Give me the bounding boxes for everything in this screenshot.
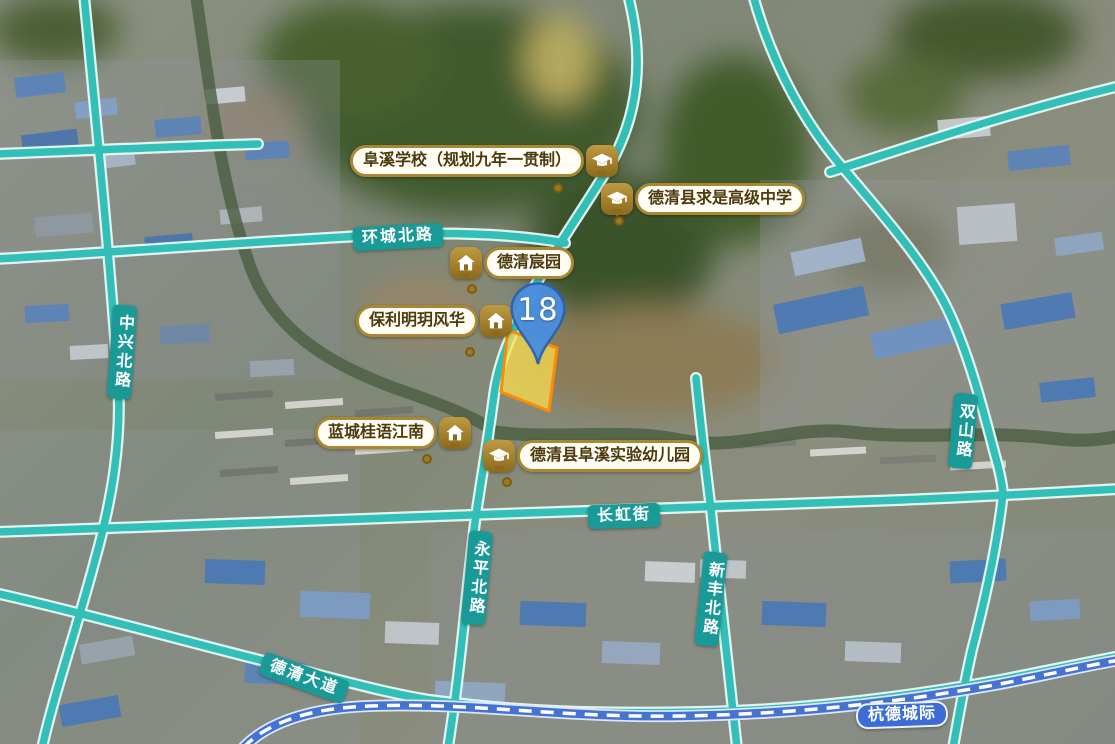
poi-anchor-dot	[553, 183, 563, 193]
school-icon	[601, 183, 633, 215]
road-label-huancheng-north: 环城北路	[352, 223, 443, 252]
poi-text: 保利明玥风华	[356, 305, 478, 337]
house-icon	[439, 417, 471, 449]
satellite-basemap	[0, 0, 1115, 744]
poi-label-qiushi-high-school[interactable]: 德清县求是高级中学	[601, 183, 805, 215]
road-label-hangde-intercity: 杭德城际	[856, 700, 949, 729]
poi-label-poly-mingyue[interactable]: 保利明玥风华	[356, 305, 512, 337]
poi-text: 德清县求是高级中学	[635, 183, 805, 215]
poi-label-fuxi-school[interactable]: 阜溪学校（规划九年一贯制）	[350, 145, 618, 177]
poi-text: 阜溪学校（规划九年一贯制）	[350, 145, 584, 177]
map-pin-number: 18	[500, 292, 576, 328]
map-canvas[interactable]: 环城北路 中兴北路 长虹街 永平北路 新丰北路 双山路 德清大道 杭德城际 阜溪…	[0, 0, 1115, 744]
road-label-changhong-street: 长虹街	[588, 503, 661, 529]
poi-label-lancheng-guiyu[interactable]: 蓝城桂语江南	[315, 417, 471, 449]
poi-text: 德清县阜溪实验幼儿园	[517, 440, 703, 472]
house-icon	[450, 247, 482, 279]
poi-anchor-dot	[465, 347, 475, 357]
school-icon	[586, 145, 618, 177]
school-icon	[483, 440, 515, 472]
poi-label-fuxi-kindergarten[interactable]: 德清县阜溪实验幼儿园	[483, 440, 703, 472]
poi-text: 蓝城桂语江南	[315, 417, 437, 449]
poi-anchor-dot	[422, 454, 432, 464]
